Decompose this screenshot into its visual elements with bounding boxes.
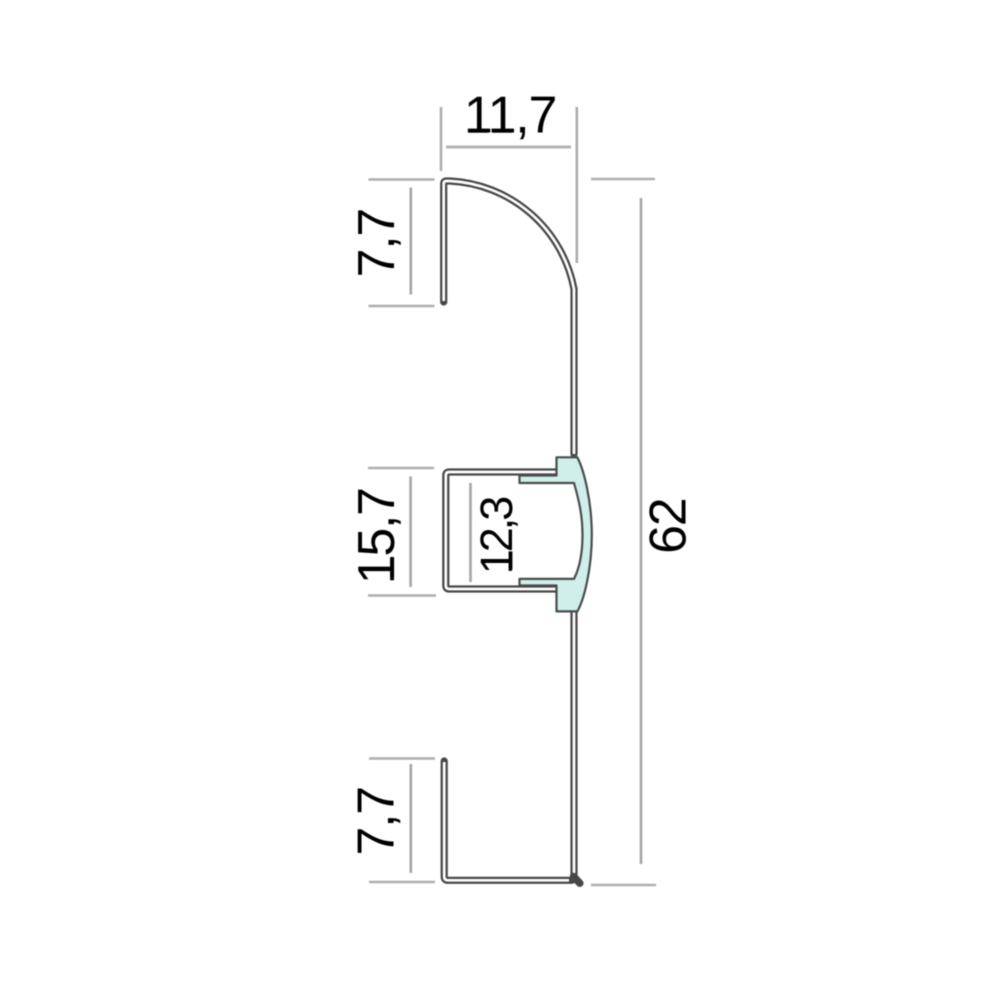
svg-text:62: 62 [640, 499, 698, 554]
svg-text:7,7: 7,7 [348, 787, 406, 855]
svg-text:11,7: 11,7 [464, 87, 556, 145]
svg-text:15,7: 15,7 [348, 488, 406, 584]
svg-text:7,7: 7,7 [348, 209, 406, 277]
svg-text:12,3: 12,3 [471, 497, 522, 575]
